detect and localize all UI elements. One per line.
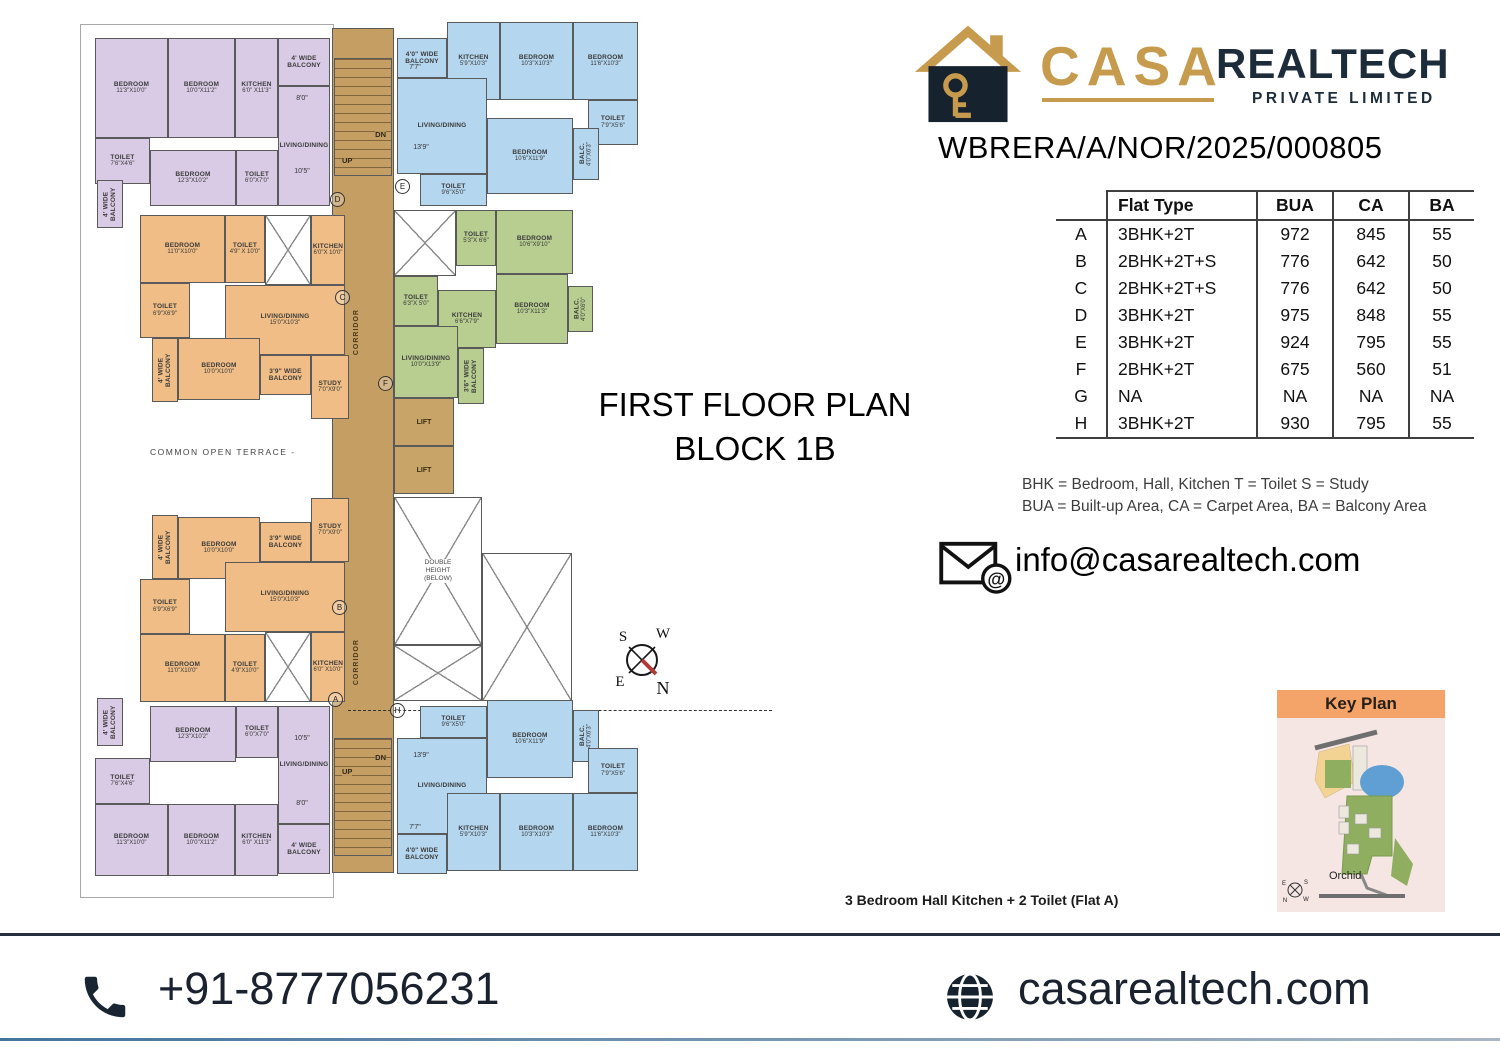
lift-1: LIFT xyxy=(394,398,454,446)
lift-2: LIFT xyxy=(394,446,454,494)
legend-line2: BUA = Built-up Area, CA = Carpet Area, B… xyxy=(1022,496,1427,518)
svg-text:E: E xyxy=(1282,881,1286,887)
table-header-row: Flat Type BUA CA BA xyxy=(1056,191,1474,220)
plan-title-line1: FIRST FLOOR PLAN xyxy=(560,383,950,427)
room-d-kitchen: KITCHEN6'0" X11'3" xyxy=(235,38,278,138)
room-d-bedroom: BEDROOM11'3"X10'0" xyxy=(95,38,168,138)
stairs-dn-label: DN xyxy=(375,130,386,139)
svg-text:N: N xyxy=(657,678,670,698)
room-e-bedroom: BEDROOM10'6"X11'9" xyxy=(487,118,573,194)
svg-text:N: N xyxy=(1283,898,1287,904)
col-ba: BA xyxy=(1409,191,1474,220)
col-bua: BUA xyxy=(1257,191,1333,220)
room-d-living-dining: LIVING/DINING xyxy=(278,86,330,206)
table-row: C2BHK+2T+S77664250 xyxy=(1056,275,1474,302)
room-a-bedroom: BEDROOM12'3"X10'2" xyxy=(150,706,236,762)
svg-text:@: @ xyxy=(987,568,1005,589)
svg-text:W: W xyxy=(1303,897,1309,903)
room-h-bedroom: BEDROOM11'6"X10'3" xyxy=(573,793,638,871)
dimension-label: 8'0" xyxy=(285,800,319,807)
abbreviation-legend: BHK = Bedroom, Hall, Kitchen T = Toilet … xyxy=(1022,474,1427,519)
room-h-bedroom: BEDROOM10'3"X10'3" xyxy=(500,793,573,871)
room-c-toilet: TOILET4'9" X 10'0" xyxy=(225,215,265,283)
room-d-toilet: TOILET6'0"X7'0" xyxy=(236,150,278,206)
key-plan-title: Key Plan xyxy=(1277,690,1445,718)
unit-marker-b: B xyxy=(332,600,347,615)
table-row: F2BHK+2T67556051 xyxy=(1056,356,1474,383)
dimension-label: 10'5" xyxy=(285,168,319,175)
dimension-label: 7'7" xyxy=(398,64,432,71)
room-c-bedroom: BEDROOM11'0"X10'0" xyxy=(140,215,225,283)
col-flat xyxy=(1056,191,1107,220)
stairs-dn-label: DN xyxy=(375,753,386,762)
room-h-bedroom: BEDROOM10'6"X11'9" xyxy=(487,700,573,778)
dimension-label: 10'5" xyxy=(285,735,319,742)
unit-marker-h: H xyxy=(390,703,405,718)
room-h-4-0-wide-balcony: 4'0" WIDE BALCONY xyxy=(397,834,447,874)
website-link[interactable]: casarealtech.com xyxy=(1018,963,1371,1015)
room-e-bedroom: BEDROOM10'3"X10'3" xyxy=(500,22,573,100)
table-row: H3BHK+2T93079555 xyxy=(1056,410,1474,438)
room-d-4-wide-balcony: 4' WIDE BALCONY xyxy=(278,38,330,86)
dimension-label: 13'9" xyxy=(404,752,438,759)
shaft-c xyxy=(265,215,311,285)
phone-icon xyxy=(78,970,132,1024)
room-b-kitchen: KITCHEN6'0" X10'0" xyxy=(311,632,345,702)
key-plan-site-sketch: E S N W xyxy=(1277,718,1445,912)
room-c-study: STUDY7'0"X9'0" xyxy=(311,355,349,419)
unit-marker-d: D xyxy=(330,192,345,207)
plan-title: FIRST FLOOR PLAN BLOCK 1B xyxy=(560,383,950,471)
room-e-4-0-wide-balcony: 4'0" WIDE BALCONY xyxy=(397,38,447,78)
room-h-kitchen: KITCHEN5'9"X10'3" xyxy=(447,793,500,871)
plan-title-line2: BLOCK 1B xyxy=(560,427,950,471)
table-row: D3BHK+2T97584855 xyxy=(1056,302,1474,329)
shaft-b xyxy=(265,632,311,702)
dimension-label: 13'9" xyxy=(404,144,438,151)
double-height-label: DOUBLE HEIGHT (BELOW) xyxy=(415,559,461,582)
room-a-4-wide-balcony: 4' WIDE BALCONY xyxy=(97,698,123,746)
brand-subtitle: PRIVATE LIMITED xyxy=(1252,90,1436,108)
shaft-f xyxy=(394,210,456,276)
table-row: B2BHK+2T+S77664250 xyxy=(1056,248,1474,275)
area-table: Flat Type BUA CA BA A3BHK+2T97284555B2BH… xyxy=(1056,190,1474,439)
rera-number: WBRERA/A/NOR/2025/000805 xyxy=(938,130,1383,166)
stairs-up-label: UP xyxy=(342,156,352,165)
unit-marker-f: F xyxy=(378,376,393,391)
room-e-toilet: TOILET9'6"X5'0" xyxy=(420,174,487,206)
key-plan: Key Plan E S N W Orchid xyxy=(1277,690,1445,912)
room-f-balc-: BALC.4'0"X6'0" xyxy=(568,286,593,332)
dimension-label: 8'0" xyxy=(285,95,319,102)
unit-marker-e: E xyxy=(395,179,410,194)
svg-text:S: S xyxy=(1304,880,1308,886)
room-e-bedroom: BEDROOM11'6"X10'3" xyxy=(573,22,638,100)
room-a-bedroom: BEDROOM11'3"X10'0" xyxy=(95,804,168,876)
room-b-bedroom: BEDROOM11'0"X10'0" xyxy=(140,634,225,702)
lift-label: LIFT xyxy=(417,467,432,474)
room-b-3-9-wide-balcony: 3'9" WIDE BALCONY xyxy=(260,522,311,562)
globe-icon xyxy=(945,972,995,1022)
room-a-toilet: TOILET7'6"X4'6" xyxy=(95,758,150,804)
room-b-toilet: TOILET4'9"X10'0" xyxy=(225,634,265,702)
room-a-bedroom: BEDROOM10'0"X11'2" xyxy=(168,804,235,876)
corridor-label: CORRIDOR xyxy=(353,309,360,355)
svg-text:W: W xyxy=(656,626,671,642)
table-row: E3BHK+2T92479555 xyxy=(1056,329,1474,356)
room-d-bedroom: BEDROOM10'0"X11'2" xyxy=(168,38,235,138)
legend-line1: BHK = Bedroom, Hall, Kitchen T = Toilet … xyxy=(1022,474,1427,496)
room-d-toilet: TOILET7'6"X4'6" xyxy=(95,138,150,184)
room-c-toilet: TOILET6'9"X6'9" xyxy=(140,283,190,338)
unit-marker-a: A xyxy=(328,692,343,707)
svg-text:E: E xyxy=(615,674,624,690)
brand-underline xyxy=(1042,98,1214,102)
room-b-toilet: TOILET6'9"X6'9" xyxy=(140,579,190,634)
footer-bottom-line xyxy=(0,1038,1500,1041)
footer-separator xyxy=(0,933,1500,936)
email-link[interactable]: info@casarealtech.com xyxy=(1015,541,1360,579)
room-b-study: STUDY7'0"X9'0" xyxy=(311,498,349,562)
plan-caption: 3 Bedroom Hall Kitchen + 2 Toilet (Flat … xyxy=(845,892,1118,908)
room-f-toilet: TOILET5'3"X 6'6" xyxy=(456,210,496,266)
compass-icon: S W E N xyxy=(600,618,684,702)
staircase-bottom: DN UP xyxy=(334,738,392,856)
room-f-bedroom: BEDROOM10'6"X9'10" xyxy=(496,210,573,274)
double-height-void: DOUBLE HEIGHT (BELOW) xyxy=(394,497,482,645)
room-c-4-wide-balcony: 4' WIDE BALCONY xyxy=(152,338,178,402)
area-table-body: A3BHK+2T97284555B2BHK+2T+S77664250C2BHK+… xyxy=(1056,220,1474,438)
email-icon: @ xyxy=(938,538,1014,594)
key-plan-project-label: Orchid xyxy=(1329,870,1361,882)
svg-text:S: S xyxy=(619,629,627,645)
void-area xyxy=(394,645,482,701)
dimension-label: 7'7" xyxy=(398,824,432,831)
void-area xyxy=(482,553,572,701)
col-flat-type: Flat Type xyxy=(1107,191,1257,220)
casa-house-logo-icon xyxy=(905,16,1031,124)
staircase-top: DN UP xyxy=(334,58,392,176)
room-e-balc-: BALC.4'0"X6'3" xyxy=(573,128,599,180)
lift-label: LIFT xyxy=(417,419,432,426)
brand-casa: CASA xyxy=(1040,34,1224,98)
room-d-bedroom: BEDROOM12'3"X10'2" xyxy=(150,150,236,206)
room-a-4-wide-balcony: 4' WIDE BALCONY xyxy=(278,824,330,874)
stairs-up-label: UP xyxy=(342,767,352,776)
table-row: GNANANANA xyxy=(1056,383,1474,410)
corridor-label: CORRIDOR xyxy=(353,639,360,685)
room-f-toilet: TOILET6'3"X 5'0" xyxy=(394,276,438,326)
room-a-toilet: TOILET6'0"X7'0" xyxy=(236,706,278,758)
room-f-living-dining: LIVING/DINING10'0"X13'9" xyxy=(394,326,458,398)
room-b-4-wide-balcony: 4' WIDE BALCONY xyxy=(152,515,178,579)
room-f-3-6-wide-balcony: 3'6" WIDE BALCONY xyxy=(458,348,484,404)
room-h-toilet: TOILET7'9"X5'6" xyxy=(588,748,638,793)
brand-realtech: REALTECH xyxy=(1216,40,1450,88)
unit-marker-c: C xyxy=(335,290,350,305)
table-row: A3BHK+2T97284555 xyxy=(1056,220,1474,248)
room-a-kitchen: KITCHEN6'0" X11'3" xyxy=(235,804,278,876)
room-c-kitchen: KITCHEN6'0"X 10'0" xyxy=(311,215,345,285)
phone-number-link[interactable]: +91-8777056231 xyxy=(158,963,500,1015)
col-ca: CA xyxy=(1333,191,1409,220)
room-d-4-wide-balcony: 4' WIDE BALCONY xyxy=(97,180,123,228)
room-c-bedroom: BEDROOM10'0"X10'0" xyxy=(178,338,260,400)
key-plan-map: E S N W Orchid xyxy=(1277,718,1445,912)
room-b-living-dining: LIVING/DINING15'0"X10'3" xyxy=(225,562,345,632)
terrace-label: COMMON OPEN TERRACE - xyxy=(150,447,296,457)
room-h-toilet: TOILET9'6"X5'0" xyxy=(420,706,487,738)
room-e-living-dining: LIVING/DINING xyxy=(397,78,487,174)
room-f-bedroom: BEDROOM10'3"X11'3" xyxy=(496,274,568,344)
room-c-3-9-wide-balcony: 3'9" WIDE BALCONY xyxy=(260,355,311,395)
